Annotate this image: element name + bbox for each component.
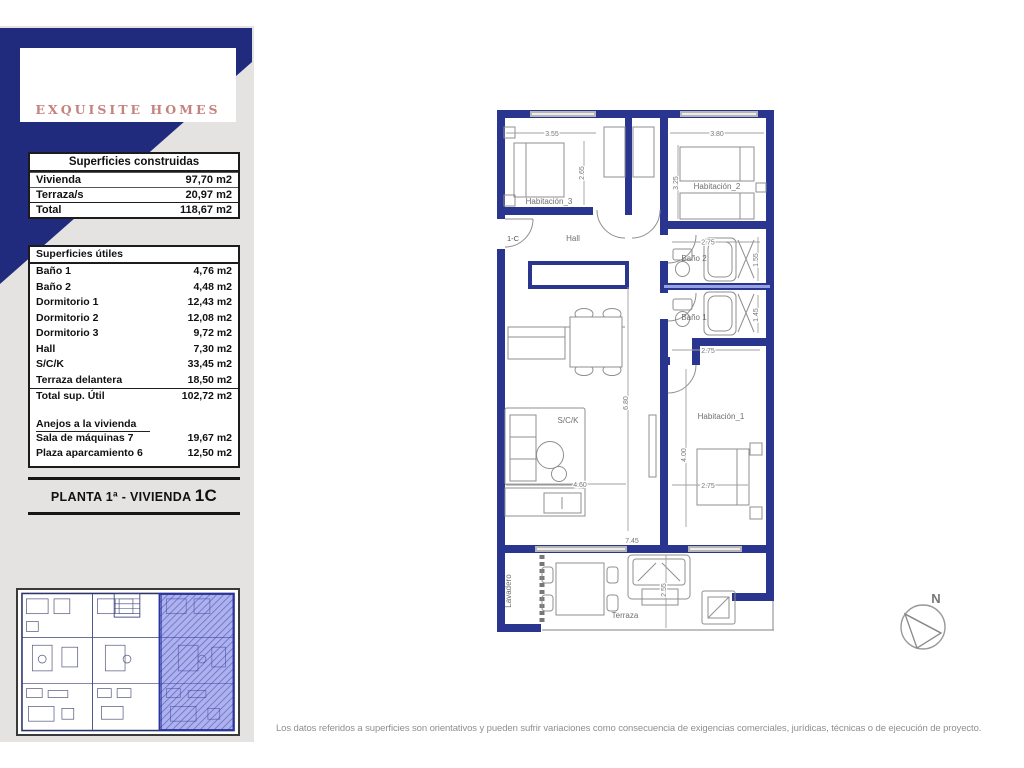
room-label-hall: Hall xyxy=(566,234,580,243)
table-row: Baño 2 4,48 m2 xyxy=(30,280,238,296)
terrace-furniture xyxy=(542,555,735,624)
dim-bano1-depth: 1.45 xyxy=(753,308,760,322)
room-label-terraza: Terraza xyxy=(612,611,639,620)
table-row: Dormitorio 2 12,08 m2 xyxy=(30,311,238,327)
table-row: Terraza delantera 18,50 m2 xyxy=(30,373,238,390)
dim-terraza-width: 7.45 xyxy=(625,538,639,545)
row-value: 12,08 m2 xyxy=(188,311,232,327)
row-label: Total sup. Útil xyxy=(36,389,105,405)
row-label: Hall xyxy=(36,342,55,358)
dim-bano1-width: 2.75 xyxy=(701,348,715,355)
table-row: Sala de máquinas 7 19,67 m2 xyxy=(30,431,238,447)
key-plan-drawing xyxy=(18,590,238,734)
row-value: 9,72 m2 xyxy=(193,326,232,342)
row-value: 4,48 m2 xyxy=(193,280,232,296)
room-label-bano-1: Baño 1 xyxy=(681,313,707,322)
kitchen-icons xyxy=(505,408,656,516)
row-value: 4,76 m2 xyxy=(193,264,232,280)
bed-icon xyxy=(697,443,762,519)
annex-title: Anejos a la vivienda xyxy=(30,417,238,431)
table-row: Baño 1 4,76 m2 xyxy=(30,264,238,280)
row-value: 20,97 m2 xyxy=(186,188,232,202)
table-row: Hall 7,30 m2 xyxy=(30,342,238,358)
useful-areas-table: Superficies útiles Baño 1 4,76 m2 Baño 2… xyxy=(28,245,240,468)
unit-banner: PLANTA 1ª - VIVIENDA 1C xyxy=(28,477,240,515)
room-label-bano-2: Baño 2 xyxy=(681,254,707,263)
row-label: Baño 2 xyxy=(36,280,71,296)
dim-terraza-depth: 2.55 xyxy=(661,583,668,597)
table-row-total: Total 118,67 m2 xyxy=(30,202,238,217)
dim-hab1-length: 4.00 xyxy=(681,448,688,462)
unit-code: 1C xyxy=(195,486,217,505)
key-plan-thumbnail xyxy=(16,588,240,736)
table-row: Plaza aparcamiento 6 12,50 m2 xyxy=(30,446,238,462)
row-value: 118,67 m2 xyxy=(180,203,232,217)
disclaimer-text: Los datos referidos a superficies son or… xyxy=(276,723,1016,734)
room-label-habitacion-3: Habitación_3 xyxy=(526,197,573,206)
dim-hab2-depth: 3.25 xyxy=(673,176,680,190)
room-label-sck: S/C/K xyxy=(558,416,580,425)
apartment-floor-plan: 3.55 2.65 3.80 3.25 2.75 1.55 2.75 1.45 … xyxy=(492,103,778,648)
hall-wardrobe-nook xyxy=(530,263,627,287)
table-spacer xyxy=(30,405,238,417)
row-label: Plaza aparcamiento 6 xyxy=(36,446,143,462)
row-label: Dormitorio 3 xyxy=(36,326,98,342)
room-label-habitacion-2: Habitación_2 xyxy=(694,182,741,191)
north-arrow-icon xyxy=(905,614,941,648)
dim-hab1-width: 2.75 xyxy=(701,483,715,490)
row-label: Vivienda xyxy=(36,173,81,187)
dim-sck-length: 6.80 xyxy=(623,396,630,410)
north-compass: N xyxy=(876,583,972,671)
table-row: Vivienda 97,70 m2 xyxy=(30,172,238,187)
dim-bano2-depth: 1.55 xyxy=(753,253,760,267)
compass-circle xyxy=(901,605,945,649)
table-row: Dormitorio 3 9,72 m2 xyxy=(30,326,238,342)
floor-plan-sheet: EXQUISITE HOMES Superficies construidas … xyxy=(0,0,1024,768)
row-label: Total xyxy=(36,203,61,217)
row-value: 102,72 m2 xyxy=(182,389,232,405)
row-value: 12,43 m2 xyxy=(188,295,232,311)
north-label: N xyxy=(931,591,940,606)
table-title: Superficies construidas xyxy=(30,154,238,172)
table-row-total: Total sup. Útil 102,72 m2 xyxy=(30,389,238,405)
row-label: Baño 1 xyxy=(36,264,71,280)
built-areas-table: Superficies construidas Vivienda 97,70 m… xyxy=(28,152,240,219)
bed-icon xyxy=(504,127,564,206)
dim-hab3-width: 3.55 xyxy=(545,131,559,138)
dim-bano2-width: 2.75 xyxy=(701,240,715,247)
dim-hab3-depth: 2.65 xyxy=(579,166,586,180)
row-label: Dormitorio 2 xyxy=(36,311,98,327)
row-value: 33,45 m2 xyxy=(188,357,232,373)
brand-logo: EXQUISITE HOMES xyxy=(20,48,236,122)
room-label-habitacion-1: Habitación_1 xyxy=(698,412,745,421)
row-label: Sala de máquinas 7 xyxy=(36,431,133,447)
living-dining-icons xyxy=(508,309,625,376)
row-label: S/C/K xyxy=(36,357,64,373)
row-value: 7,30 m2 xyxy=(193,342,232,358)
row-value: 19,67 m2 xyxy=(188,431,232,447)
table-row: Terraza/s 20,97 m2 xyxy=(30,187,238,202)
table-title: Superficies útiles xyxy=(30,247,238,264)
dim-hab2-width: 3.80 xyxy=(710,131,724,138)
row-value: 12,50 m2 xyxy=(188,446,232,462)
table-row: S/C/K 33,45 m2 xyxy=(30,357,238,373)
dim-sck-width: 4.60 xyxy=(573,482,587,489)
brand-name: EXQUISITE HOMES xyxy=(35,102,220,117)
row-label: Terraza delantera xyxy=(36,373,122,389)
row-label: Terraza/s xyxy=(36,188,84,202)
row-value: 97,70 m2 xyxy=(186,173,232,187)
row-value: 18,50 m2 xyxy=(188,373,232,389)
room-label-lavadero: Lavadero xyxy=(504,574,513,608)
highlighted-unit-overlay xyxy=(160,594,234,730)
table-row: Dormitorio 1 12,43 m2 xyxy=(30,295,238,311)
row-label: Dormitorio 1 xyxy=(36,295,98,311)
entrance-label: 1-C xyxy=(507,234,520,243)
unit-banner-prefix: PLANTA 1ª - VIVIENDA xyxy=(51,490,195,504)
